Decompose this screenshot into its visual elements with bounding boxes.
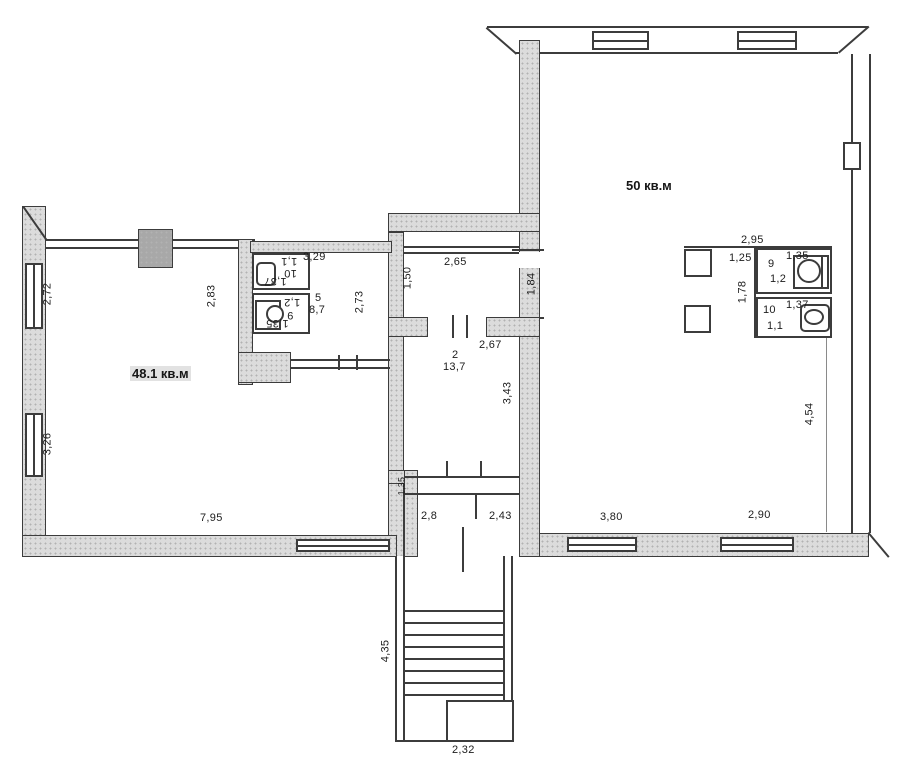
middle-top-wall [388,213,540,232]
bottom-wall-right-slant [867,532,889,558]
dim-left-room-right: 2,83 [205,285,217,308]
wc-left-room10-width: 1,37 [264,275,287,287]
dimension-extension-line [826,336,827,532]
door-tick [356,355,358,370]
parapet-window-left [592,31,649,50]
big-room-window-right [720,537,794,552]
vestibule-line2 [404,493,519,495]
wc-right-inner-height: 1,78 [736,281,748,304]
parapet-window-right [737,31,797,50]
dim-big-room-right: 4,54 [803,403,815,426]
left-wall-window-top [25,263,43,329]
wc-right-room9-depth: 1,2 [770,273,786,285]
stairs-landing [446,700,514,742]
dim-big-room-wall: 1,84 [525,273,537,296]
big-room-door-opening [516,252,543,268]
door-tick [480,461,482,478]
wc-right-room10-width: 1,37 [786,299,809,311]
dim-room2-mid: 2,67 [479,339,502,351]
dim-room2-top: 2,65 [444,256,467,268]
floor-plan: 50 кв.м 48.1 кв.м 2 13,7 5 8,7 2,95 1,25… [0,0,909,768]
parapet-top-line [487,26,868,28]
shaft-box-top [684,249,712,277]
wc-right-room9-number: 9 [768,258,774,270]
big-room-window-left [567,537,637,552]
stairs-left-wall [395,556,405,742]
wc-right-room9-width: 1,35 [786,250,809,262]
wc-right-width-top: 2,95 [741,234,764,246]
dim-left-window-top: 2,72 [41,283,53,306]
parapet-right-slant [838,26,870,54]
parapet-left-slant [486,27,518,55]
dim-vestibule-bottom-left: 2,8 [421,510,437,522]
left-exterior-wall [22,206,46,557]
dim-room2-left: 1,50 [401,267,413,290]
door-tick [446,461,448,478]
dim-room5-right: 2,73 [353,291,365,314]
left-bottom-window [296,539,390,552]
room2-door-stub-right [486,317,540,337]
parapet-bottom-line [516,52,838,54]
big-room-area-label: 50 кв.м [626,178,672,193]
room2-top-line2 [404,252,519,254]
partition-line1 [290,359,390,361]
partition-stub [238,352,291,383]
right-wall-notch [843,142,861,170]
big-room-right-wall [851,54,871,533]
wc-right-room10-number: 10 [763,304,776,316]
toilet-bowl-right [804,309,824,325]
wc-right-entry-width: 1,25 [729,252,752,264]
wc-left-room9-width: 1,35 [266,317,289,329]
room5-number: 5 [315,292,321,304]
door-tick [338,355,340,370]
washer-drum [797,259,821,283]
entry-opening [420,533,502,558]
dim-left-window-bottom: 3,26 [41,433,53,456]
door-tick [452,315,454,338]
left-room-area-label: 48.1 кв.м [130,366,191,381]
dim-left-room-bottom: 7,95 [200,512,223,524]
door-tick [475,493,477,519]
wc-left-width-top: 3,29 [303,251,326,263]
wc-left-room10-depth: 1,1 [281,255,297,267]
left-wall-window-bottom [25,413,43,477]
dim-room2-right: 3,43 [501,382,513,405]
dim-big-room-bottom-left: 3,80 [600,511,623,523]
room2-door-stub-left [388,317,428,337]
room2-top-line [404,246,519,248]
wc-left-room9-depth: 1,2 [284,296,300,308]
dim-stairs-length: 4,35 [379,640,391,663]
room2-number: 2 [452,349,458,361]
room5-area: 8,7 [309,304,325,316]
vestibule-line1 [404,476,519,478]
dim-tick [512,249,544,251]
chimney-column [138,229,173,268]
dim-vestibule-bottom-right: 2,43 [489,510,512,522]
big-room-left-wall [519,40,540,557]
dim-stairs-bottom: 2,32 [452,744,475,756]
dim-vestibule-left: 1,35 [395,477,407,496]
wc-right-room10-depth: 1,1 [767,320,783,332]
dim-big-room-bottom-right: 2,90 [748,509,771,521]
partition-line2 [290,367,390,369]
washer-panel-line [821,257,823,287]
stairs-bottom-line [395,740,448,742]
room2-area: 13,7 [443,361,466,373]
entry-door-tick [462,527,464,572]
stairs-treads [405,610,503,704]
shaft-box-bottom [684,305,711,333]
door-tick [466,315,468,338]
